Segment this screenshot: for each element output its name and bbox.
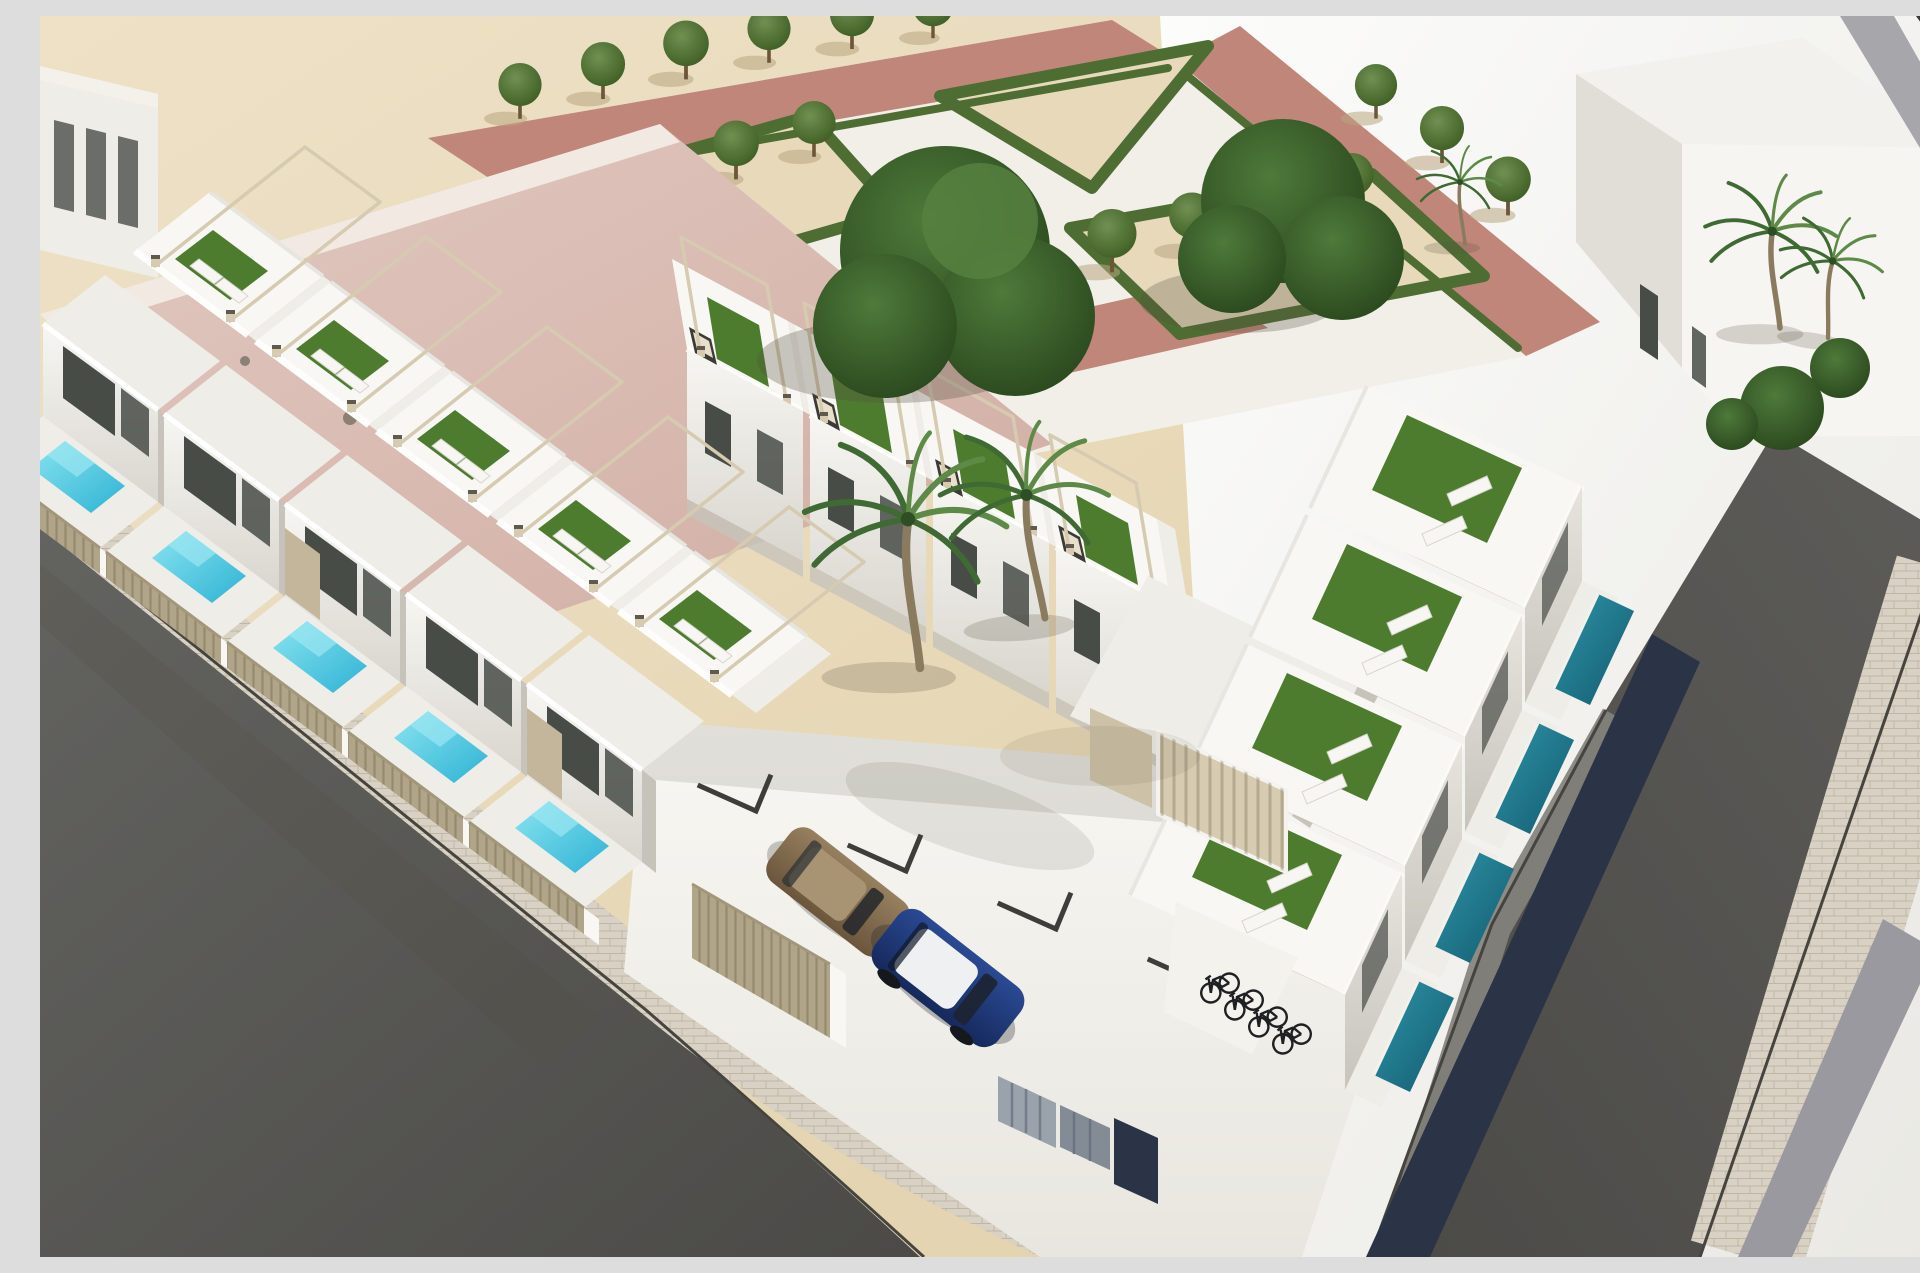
bush — [1810, 338, 1870, 398]
slit-window — [1640, 284, 1658, 360]
architectural-render: Aerial 3D architectural rendering of a m… — [40, 16, 1920, 1257]
roof-vent — [240, 356, 250, 366]
palm-shadow — [1000, 726, 1200, 786]
slit-window — [1692, 326, 1706, 388]
render-canvas: Aerial 3D architectural rendering of a m… — [40, 16, 1920, 1257]
bush — [1706, 398, 1758, 450]
far-left-building — [40, 66, 158, 278]
